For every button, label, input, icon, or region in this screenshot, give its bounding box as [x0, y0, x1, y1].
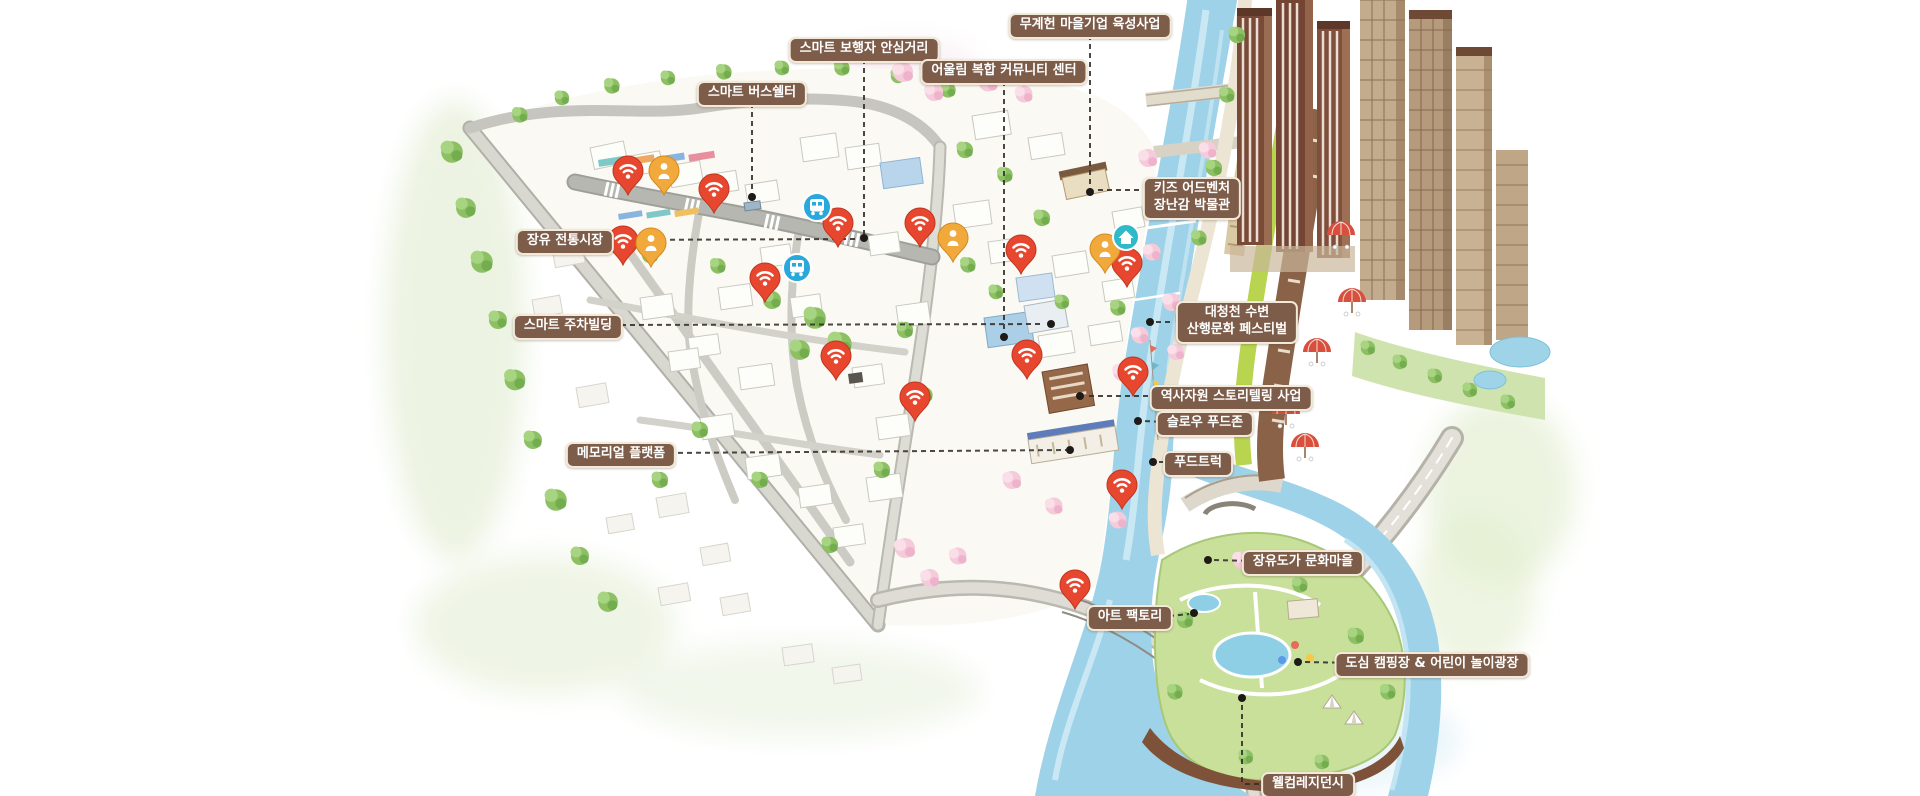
label-text: 장유 전통시장 — [527, 233, 603, 250]
label-text: 슬로우 푸드존 — [1167, 415, 1243, 432]
label-art-factory: 아트 팩토리 — [1087, 605, 1173, 631]
pavilion — [848, 372, 863, 384]
label-text: 메모리얼 플랫폼 — [577, 446, 665, 463]
label-text: 아트 팩토리 — [1098, 609, 1162, 626]
label-slow-food-zone: 슬로우 푸드존 — [1156, 411, 1254, 437]
label-text: 스마트 보행자 안심거리 — [800, 41, 929, 58]
label-memorial-platform: 메모리얼 플랫폼 — [566, 442, 676, 468]
label-text: 역사자원 스토리텔링 사업 — [1161, 389, 1302, 406]
label-history-storytelling: 역사자원 스토리텔링 사업 — [1150, 385, 1313, 411]
label-eoullim-community-center: 어울림 복합 커뮤니티 센터 — [920, 59, 1087, 85]
label-jangyu-traditional-market: 장유 전통시장 — [516, 229, 614, 255]
label-mugyeheon-village-business: 무계헌 마을기업 육성사업 — [1009, 13, 1172, 39]
label-welcome-residency: 웰컴레지던시 — [1261, 772, 1355, 796]
label-city-camping-playground: 도심 캠핑장 & 어린이 놀이광장 — [1335, 652, 1530, 678]
bus-shelter-canopy — [744, 201, 761, 211]
map-illustration — [0, 0, 1920, 796]
label-daecheongcheon-festival: 대청천 수변산행문화 페스티벌 — [1176, 301, 1298, 344]
bus-circle-icon — [803, 193, 831, 221]
label-kids-adventure-toy-museum: 키즈 어드벤처장난감 박물관 — [1143, 177, 1241, 220]
label-text: 푸드트럭 — [1174, 455, 1222, 472]
label-text: 웰컴레지던시 — [1272, 776, 1344, 793]
house-circle-icon — [1113, 224, 1139, 250]
label-text: 도심 캠핑장 & 어린이 놀이광장 — [1346, 656, 1519, 673]
bus-circle-icon — [783, 254, 811, 282]
label-food-truck: 푸드트럭 — [1163, 451, 1233, 477]
tower-cluster-beige — [1352, 0, 1550, 420]
label-text: 스마트 버스쉘터 — [708, 85, 796, 102]
label-text: 장난감 박물관 — [1154, 198, 1230, 215]
label-smart-parking-building: 스마트 주차빌딩 — [513, 314, 623, 340]
label-text: 무계헌 마을기업 육성사업 — [1020, 17, 1161, 34]
label-text: 키즈 어드벤처 — [1154, 181, 1230, 198]
label-smart-bus-shelter: 스마트 버스쉘터 — [697, 81, 807, 107]
label-smart-pedestrian-street: 스마트 보행자 안심거리 — [789, 37, 940, 63]
label-text: 대청천 수변 — [1187, 305, 1287, 322]
urban-regeneration-map: 스마트 보행자 안심거리 스마트 버스쉘터 무계헌 마을기업 육성사업 어울림 … — [0, 0, 1920, 796]
history-building — [1042, 364, 1095, 413]
label-text: 어울림 복합 커뮤니티 센터 — [931, 63, 1076, 80]
label-text: 스마트 주차빌딩 — [524, 318, 612, 335]
label-text: 산행문화 페스티벌 — [1187, 322, 1287, 339]
label-jangyudoga-culture-village: 장유도가 문화마을 — [1242, 550, 1364, 576]
label-text: 장유도가 문화마을 — [1253, 554, 1353, 571]
